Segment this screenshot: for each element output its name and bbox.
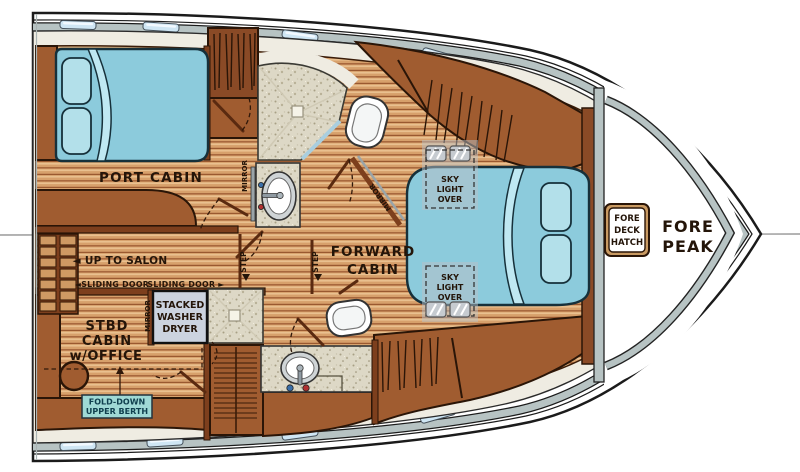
stbd-cabin-line1: STBD [86, 319, 129, 334]
skylight-line2: LIGHT [437, 283, 464, 292]
mirror-label-stbd: MIRROR [144, 300, 152, 332]
port-cabin-label: PORT CABIN [99, 170, 203, 186]
hatch-line2: DECK [614, 226, 640, 236]
port-cabin-berth [56, 49, 208, 161]
companionway-steps [38, 234, 78, 314]
pillow [541, 183, 571, 231]
svg-text:STEP: STEP [239, 251, 248, 273]
pillow [541, 235, 571, 283]
stbd-cabin-line2: CABIN [82, 334, 132, 349]
port-cabin-aft-cabinet [36, 190, 196, 226]
fore-peak-line2: PEAK [662, 237, 713, 256]
skylight-line3: OVER [438, 195, 462, 204]
toilet-stbd [325, 298, 373, 338]
stbd-cabin-line3: w/OFFICE [70, 349, 143, 364]
port-cabin-side-cabinet [36, 46, 57, 160]
fore-peak: FORE DECK HATCH FORE PEAK [594, 80, 743, 388]
forward-cabin-line1: FORWARD [331, 244, 415, 260]
washer-line2: WASHER [157, 312, 204, 323]
mirror-strip-port [251, 167, 255, 221]
skylight-line2: LIGHT [437, 185, 464, 194]
boat-floor-plan: STACKED WASHER DRYER FOLD-DOWN UPPER BER… [0, 0, 800, 472]
washer-line1: STACKED [156, 300, 205, 311]
corridor-fwd-wall [36, 226, 238, 233]
hatch-line3: HATCH [611, 238, 643, 248]
pillow [62, 108, 91, 154]
hatch-line1: FORE [614, 214, 640, 224]
tap-hot-stbd [303, 385, 309, 391]
tap-hot-port [258, 204, 263, 209]
fore-deck-hatch-label: FORE DECK HATCH [605, 204, 649, 256]
vanity-stbd [261, 346, 374, 392]
tap-cold-port [258, 182, 263, 187]
stbd-head-divider [372, 340, 378, 424]
sliding-door-right-label: SLIDING DOOR ► [147, 280, 224, 289]
tap-cold-stbd [287, 385, 293, 391]
svg-text:STEP: STEP [311, 251, 320, 273]
pillow [62, 58, 91, 104]
fold-down-line2: UPPER BERTH [86, 407, 148, 416]
sliding-door-left-label: ◄SLIDING DOOR [75, 280, 149, 289]
floor-plan-canvas: STACKED WASHER DRYER FOLD-DOWN UPPER BER… [0, 0, 800, 472]
skylight-line1: SKY [441, 273, 459, 282]
desk-stool [60, 362, 88, 390]
fold-down-berth-label: FOLD-DOWN UPPER BERTH [82, 395, 152, 418]
skylight-forward-top: SKY LIGHT OVER [422, 140, 478, 210]
shower-drain [229, 310, 240, 321]
mirror-label-port: MIRROR [241, 160, 249, 192]
shower-drain [292, 106, 303, 117]
collision-bulkhead [594, 88, 604, 382]
fore-peak-line1: FORE [662, 217, 714, 236]
skylight-line1: SKY [441, 175, 459, 184]
vanity-port [251, 163, 300, 227]
forward-cabin-line2: CABIN [347, 262, 399, 278]
up-to-salon-label: ◄ UP TO SALON [73, 255, 168, 267]
fold-down-line1: FOLD-DOWN [89, 398, 145, 407]
skylight-forward-bottom: SKY LIGHT OVER [422, 262, 478, 322]
skylight-line3: OVER [438, 293, 462, 302]
washer-dryer-box: STACKED WASHER DRYER [153, 291, 207, 343]
washer-line3: DRYER [162, 324, 198, 335]
